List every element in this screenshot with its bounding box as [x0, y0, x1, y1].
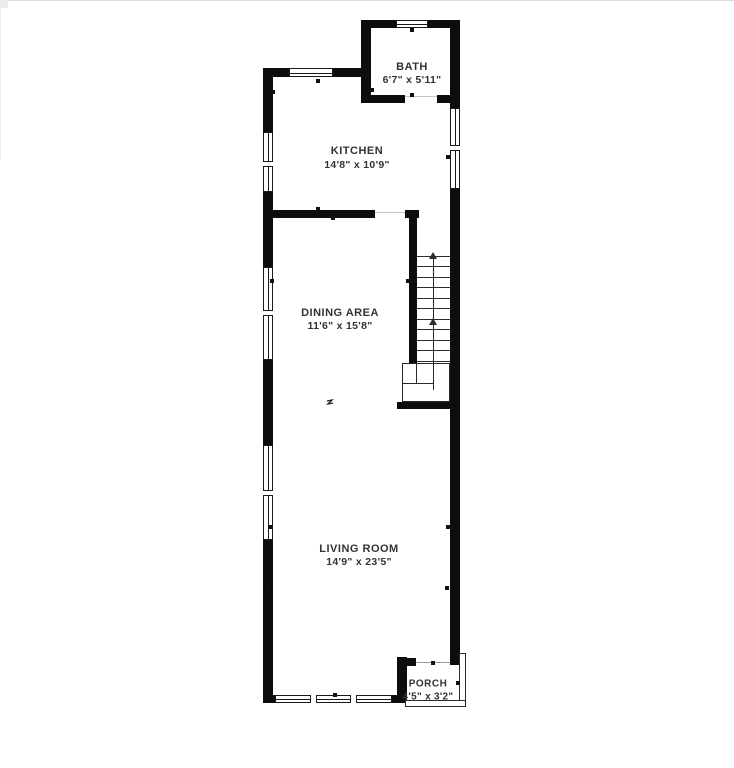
wall-tick	[331, 216, 335, 220]
plan-squiggle-mark	[326, 399, 335, 407]
wall-tick	[271, 90, 275, 94]
room-dimensions-porch: 4'5" x 3'2"	[403, 692, 454, 703]
room-label-living: LIVING ROOM	[319, 543, 398, 555]
page-edge-line-left	[0, 0, 1, 160]
wall-tick	[431, 661, 435, 665]
room-label-bath: BATH	[396, 61, 428, 73]
wall-stair-bottom	[397, 402, 455, 409]
wall-tick	[370, 88, 374, 92]
window-right-kitchen	[450, 108, 460, 189]
wall-tick	[445, 586, 449, 590]
wall-right-upper	[450, 20, 460, 108]
window-divider	[263, 161, 273, 167]
wall-tick	[406, 279, 410, 283]
wall-tick	[410, 93, 414, 97]
window-divider	[310, 695, 317, 703]
up-arrow-icon	[429, 318, 437, 325]
room-label-porch: PORCH	[409, 679, 448, 690]
window-bath-top	[396, 20, 428, 28]
wall-stair	[409, 218, 417, 365]
window-pane-line	[397, 24, 427, 25]
wall-tick	[266, 586, 270, 590]
opening-line-dining	[375, 212, 406, 213]
room-label-dining: DINING AREA	[301, 307, 379, 319]
wall-tick	[333, 693, 337, 697]
wall-kitchen-dining-divider	[263, 210, 375, 218]
wall-tick	[410, 28, 414, 32]
page-edge-line-top	[0, 0, 734, 1]
wall-stair-cap	[405, 210, 419, 218]
wall-bath-bottom-left	[361, 95, 405, 103]
page-corner-smudge	[0, 0, 8, 8]
window-kitchen-top	[289, 68, 333, 77]
wall-porch-stub	[407, 658, 416, 666]
porch-rail-right	[459, 653, 466, 707]
room-dimensions-bath: 6'7" x 5'11"	[383, 74, 442, 86]
floor-plan: BATH 6'7" x 5'11" KITCHEN 14'8" x 10'9" …	[0, 0, 734, 768]
window-divider	[263, 310, 273, 316]
wall-tick	[456, 681, 460, 685]
window-pane-line	[276, 699, 391, 700]
room-dimensions-dining: 11'6" x 15'8"	[308, 320, 373, 332]
wall-tick	[446, 155, 450, 159]
wall-tick	[446, 525, 450, 529]
wall-right-main	[450, 189, 460, 665]
window-pane-line	[290, 73, 332, 74]
stair-landing-line	[416, 363, 417, 383]
wall-tick	[268, 525, 272, 529]
room-dimensions-kitchen: 14'8" x 10'9"	[324, 159, 390, 171]
room-dimensions-living: 14'9" x 23'5"	[326, 556, 392, 568]
wall-tick	[316, 79, 320, 83]
up-arrow-icon	[429, 252, 437, 259]
window-left-kitchen	[263, 132, 273, 192]
window-divider	[350, 695, 357, 703]
stair-landing-line	[402, 383, 433, 384]
wall-tick	[316, 207, 320, 211]
room-label-kitchen: KITCHEN	[331, 145, 383, 157]
wall-tick	[270, 279, 274, 283]
window-divider	[263, 490, 273, 496]
window-divider	[450, 145, 460, 151]
